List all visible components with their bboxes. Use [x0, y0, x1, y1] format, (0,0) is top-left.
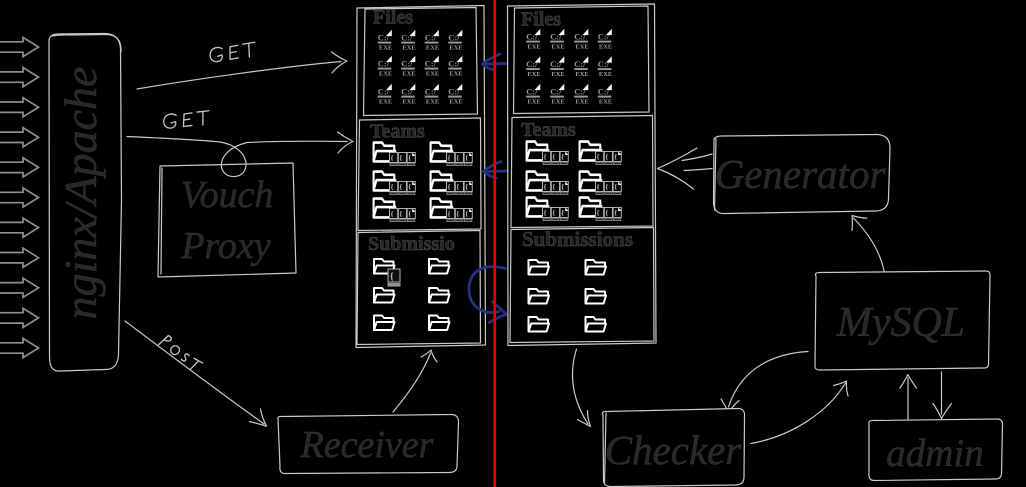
- svg-text:Teams: Teams: [370, 121, 425, 143]
- svg-text:Proxy: Proxy: [180, 225, 270, 267]
- svg-text:Generator: Generator: [715, 151, 887, 197]
- svg-text:Files: Files: [373, 7, 413, 29]
- svg-text:Files: Files: [521, 9, 561, 31]
- svg-text:MySQL: MySQL: [836, 300, 965, 346]
- svg-text:Checker: Checker: [605, 427, 743, 473]
- svg-text:nginx/Apache: nginx/Apache: [55, 67, 106, 320]
- svg-text:admin: admin: [886, 432, 984, 475]
- svg-text:{: {: [390, 271, 394, 281]
- svg-text:Teams: Teams: [521, 119, 576, 141]
- svg-text:Submissions: Submissions: [522, 227, 633, 251]
- svg-text:Vouch: Vouch: [181, 174, 274, 216]
- svg-text:Submissio: Submissio: [368, 233, 455, 255]
- svg-text:Receiver: Receiver: [300, 424, 434, 466]
